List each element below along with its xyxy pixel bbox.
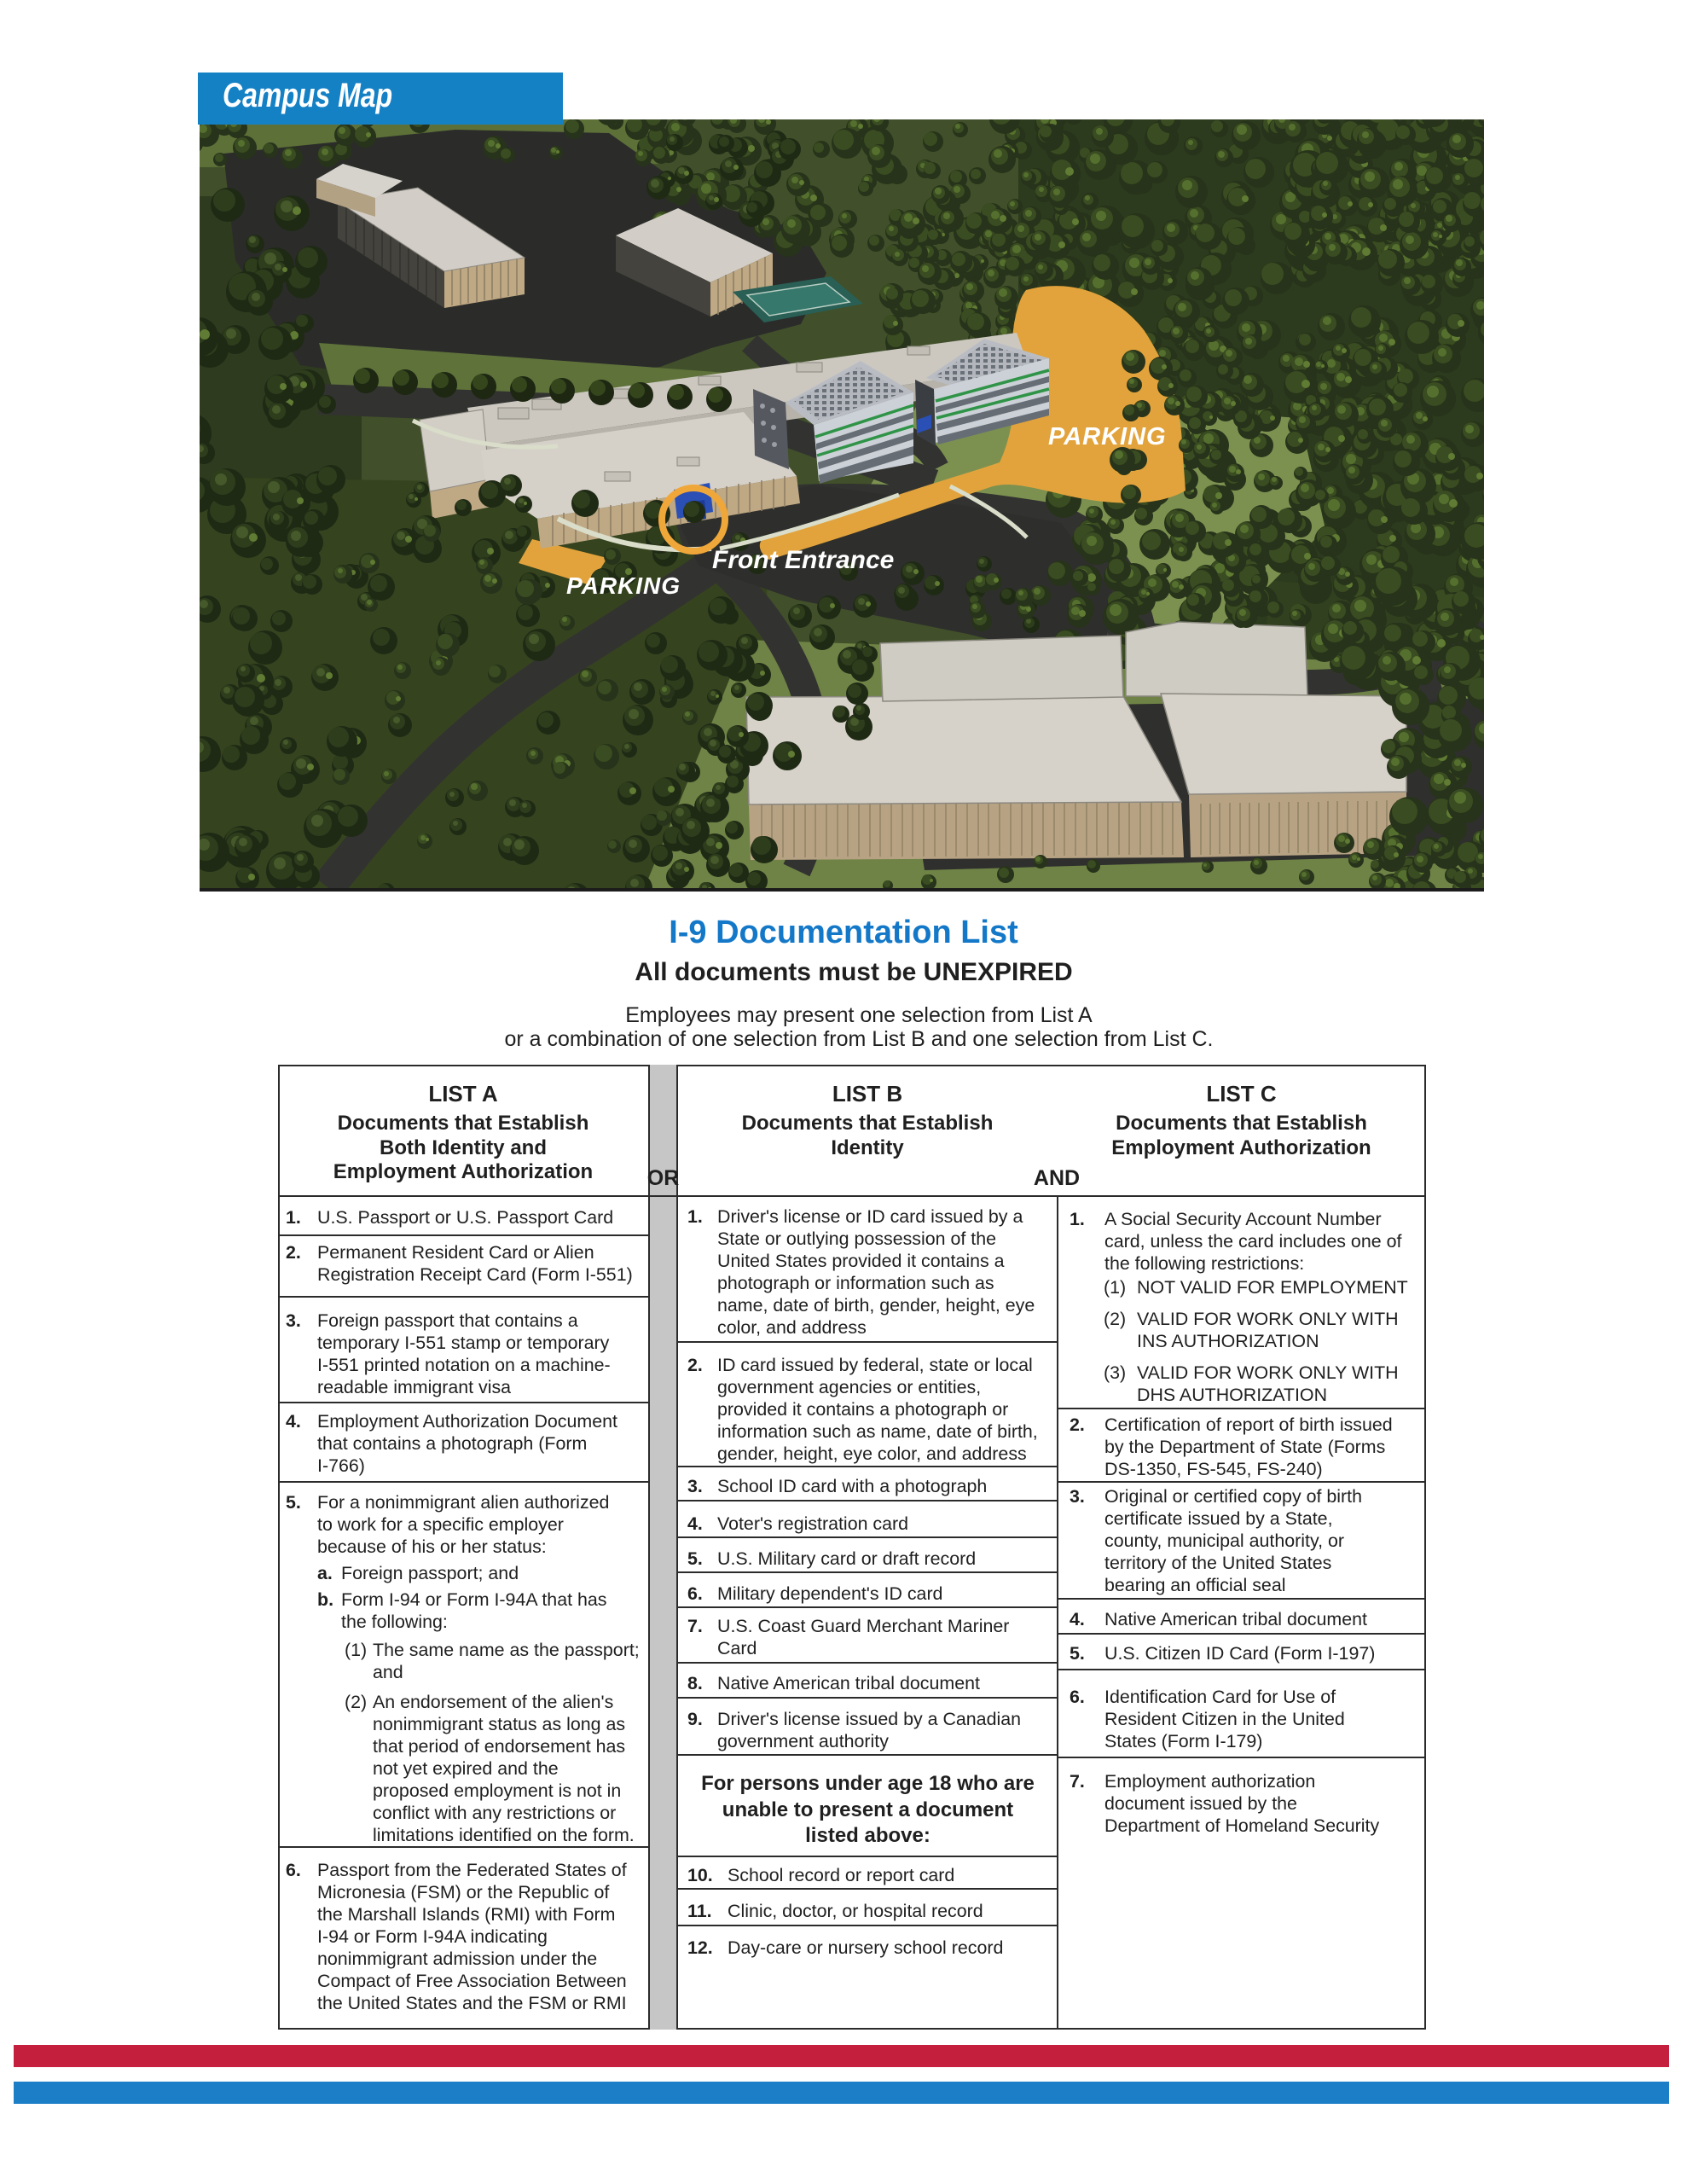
svg-text:Front Entrance: Front Entrance [712,546,894,574]
svg-text:PARKING: PARKING [566,572,681,599]
svg-text:PARKING: PARKING [1048,423,1167,450]
